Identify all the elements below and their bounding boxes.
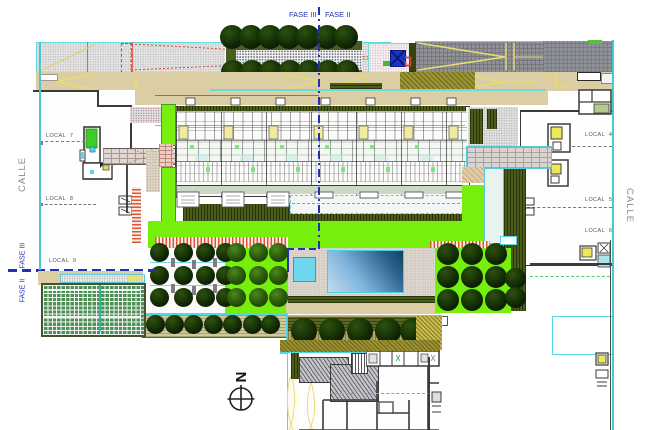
svg-text:N: N — [232, 372, 249, 383]
